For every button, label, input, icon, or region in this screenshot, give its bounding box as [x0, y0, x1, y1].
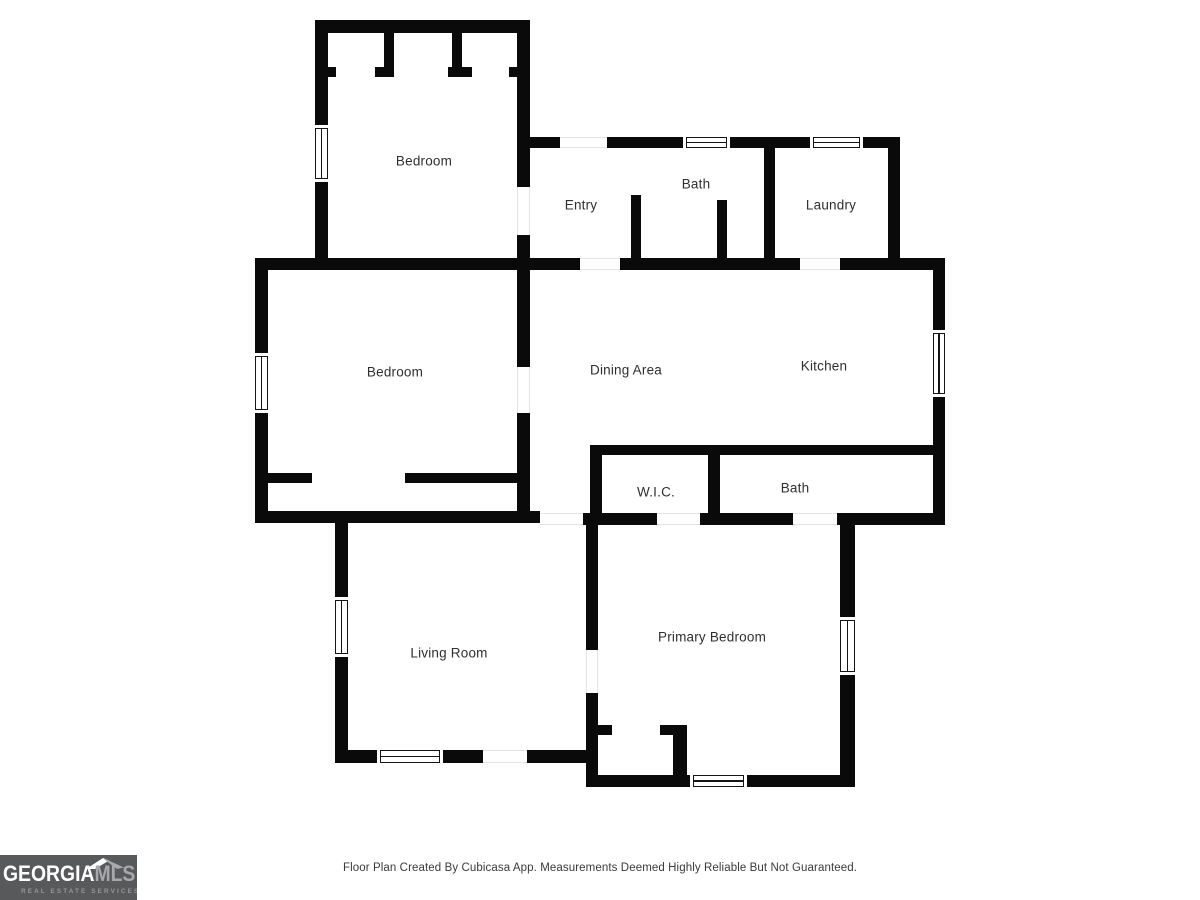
wall-segment — [620, 258, 800, 270]
wall-segment — [255, 413, 268, 523]
wall-segment — [586, 693, 598, 787]
wall-segment — [747, 775, 855, 787]
door-opening — [657, 513, 700, 525]
wall-segment — [607, 137, 683, 148]
window — [315, 128, 328, 179]
window — [693, 775, 744, 787]
logo-text-mls: MLS — [94, 861, 135, 886]
floor-plan-page: BedroomEntryBathLaundryBedroomDining Are… — [0, 0, 1200, 900]
georgia-mls-logo: GEORGIAMLS REAL ESTATE SERVICES — [0, 855, 137, 900]
wall-segment — [335, 750, 377, 763]
wall-segment — [315, 20, 328, 125]
window — [686, 137, 727, 148]
logo-text-georgia: GEORGIA — [3, 861, 94, 886]
wall-segment — [673, 725, 687, 775]
window — [933, 333, 945, 394]
door-opening — [800, 258, 840, 270]
wall-segment — [255, 258, 580, 270]
window — [255, 356, 268, 410]
door-opening — [560, 137, 607, 148]
window — [335, 600, 348, 654]
door-opening — [517, 367, 530, 413]
wall-segment — [590, 445, 945, 455]
wall-segment — [730, 137, 810, 148]
wall-segment — [933, 270, 945, 330]
wall-segment — [598, 725, 612, 735]
wall-segment — [375, 67, 394, 77]
wall-segment — [448, 67, 472, 77]
wall-segment — [328, 67, 336, 77]
wall-segment — [708, 455, 720, 513]
wall-segment — [527, 750, 592, 763]
window — [813, 137, 860, 148]
logo-tagline: REAL ESTATE SERVICES — [21, 888, 137, 895]
wall-segment — [335, 657, 348, 763]
wall-segment — [933, 397, 945, 525]
window-pane — [938, 334, 940, 393]
room-label-entry: Entry — [565, 198, 598, 213]
wall-segment — [509, 67, 517, 77]
wall-segment — [700, 513, 793, 525]
window-pane — [381, 756, 439, 758]
window-pane — [261, 357, 263, 409]
room-label-wic: W.I.C. — [637, 485, 675, 500]
door-opening — [483, 750, 527, 763]
wall-segment — [840, 525, 855, 617]
wall-segment — [405, 473, 517, 483]
window-pane — [694, 780, 743, 782]
wall-segment — [586, 525, 598, 650]
window-pane — [847, 621, 849, 671]
wall-segment — [840, 675, 855, 787]
door-opening — [540, 513, 583, 525]
wall-segment — [631, 195, 641, 258]
room-label-primary-bedroom: Primary Bedroom — [658, 630, 766, 645]
wall-segment — [888, 137, 900, 258]
wall-segment — [840, 258, 945, 270]
room-label-living-room: Living Room — [410, 646, 487, 661]
wall-segment — [255, 270, 268, 353]
wall-segment — [268, 473, 312, 483]
room-label-bath-upper: Bath — [682, 177, 711, 192]
logo-wordmark: GEORGIAMLS — [3, 861, 135, 887]
wall-segment — [592, 775, 690, 787]
room-label-bedroom-top: Bedroom — [396, 154, 452, 169]
wall-segment — [315, 182, 328, 268]
wall-segment — [443, 750, 483, 763]
wall-segment — [517, 20, 530, 187]
disclaimer-text: Floor Plan Created By Cubicasa App. Meas… — [0, 862, 1200, 874]
window-pane — [341, 601, 343, 653]
door-opening — [580, 258, 620, 270]
wall-segment — [517, 270, 530, 367]
room-label-laundry: Laundry — [806, 198, 856, 213]
window-pane — [687, 142, 726, 144]
window — [380, 750, 440, 763]
wall-segment — [315, 20, 530, 33]
wall-segment — [517, 413, 530, 511]
room-label-kitchen: Kitchen — [801, 359, 847, 374]
wall-segment — [530, 137, 560, 148]
window — [840, 620, 855, 672]
door-opening — [517, 187, 530, 235]
wall-segment — [583, 513, 657, 525]
room-label-dining-area: Dining Area — [590, 363, 662, 378]
wall-segment — [590, 455, 602, 513]
window-pane — [321, 129, 323, 178]
room-label-bedroom-left: Bedroom — [367, 365, 423, 380]
wall-segment — [764, 148, 775, 258]
door-opening — [793, 513, 837, 525]
door-opening — [586, 650, 598, 693]
wall-segment — [717, 200, 727, 258]
room-label-bath-lower: Bath — [781, 481, 810, 496]
window-pane — [814, 142, 859, 144]
wall-segment — [837, 513, 945, 525]
wall-segment — [255, 511, 540, 523]
wall-segment — [335, 523, 348, 597]
